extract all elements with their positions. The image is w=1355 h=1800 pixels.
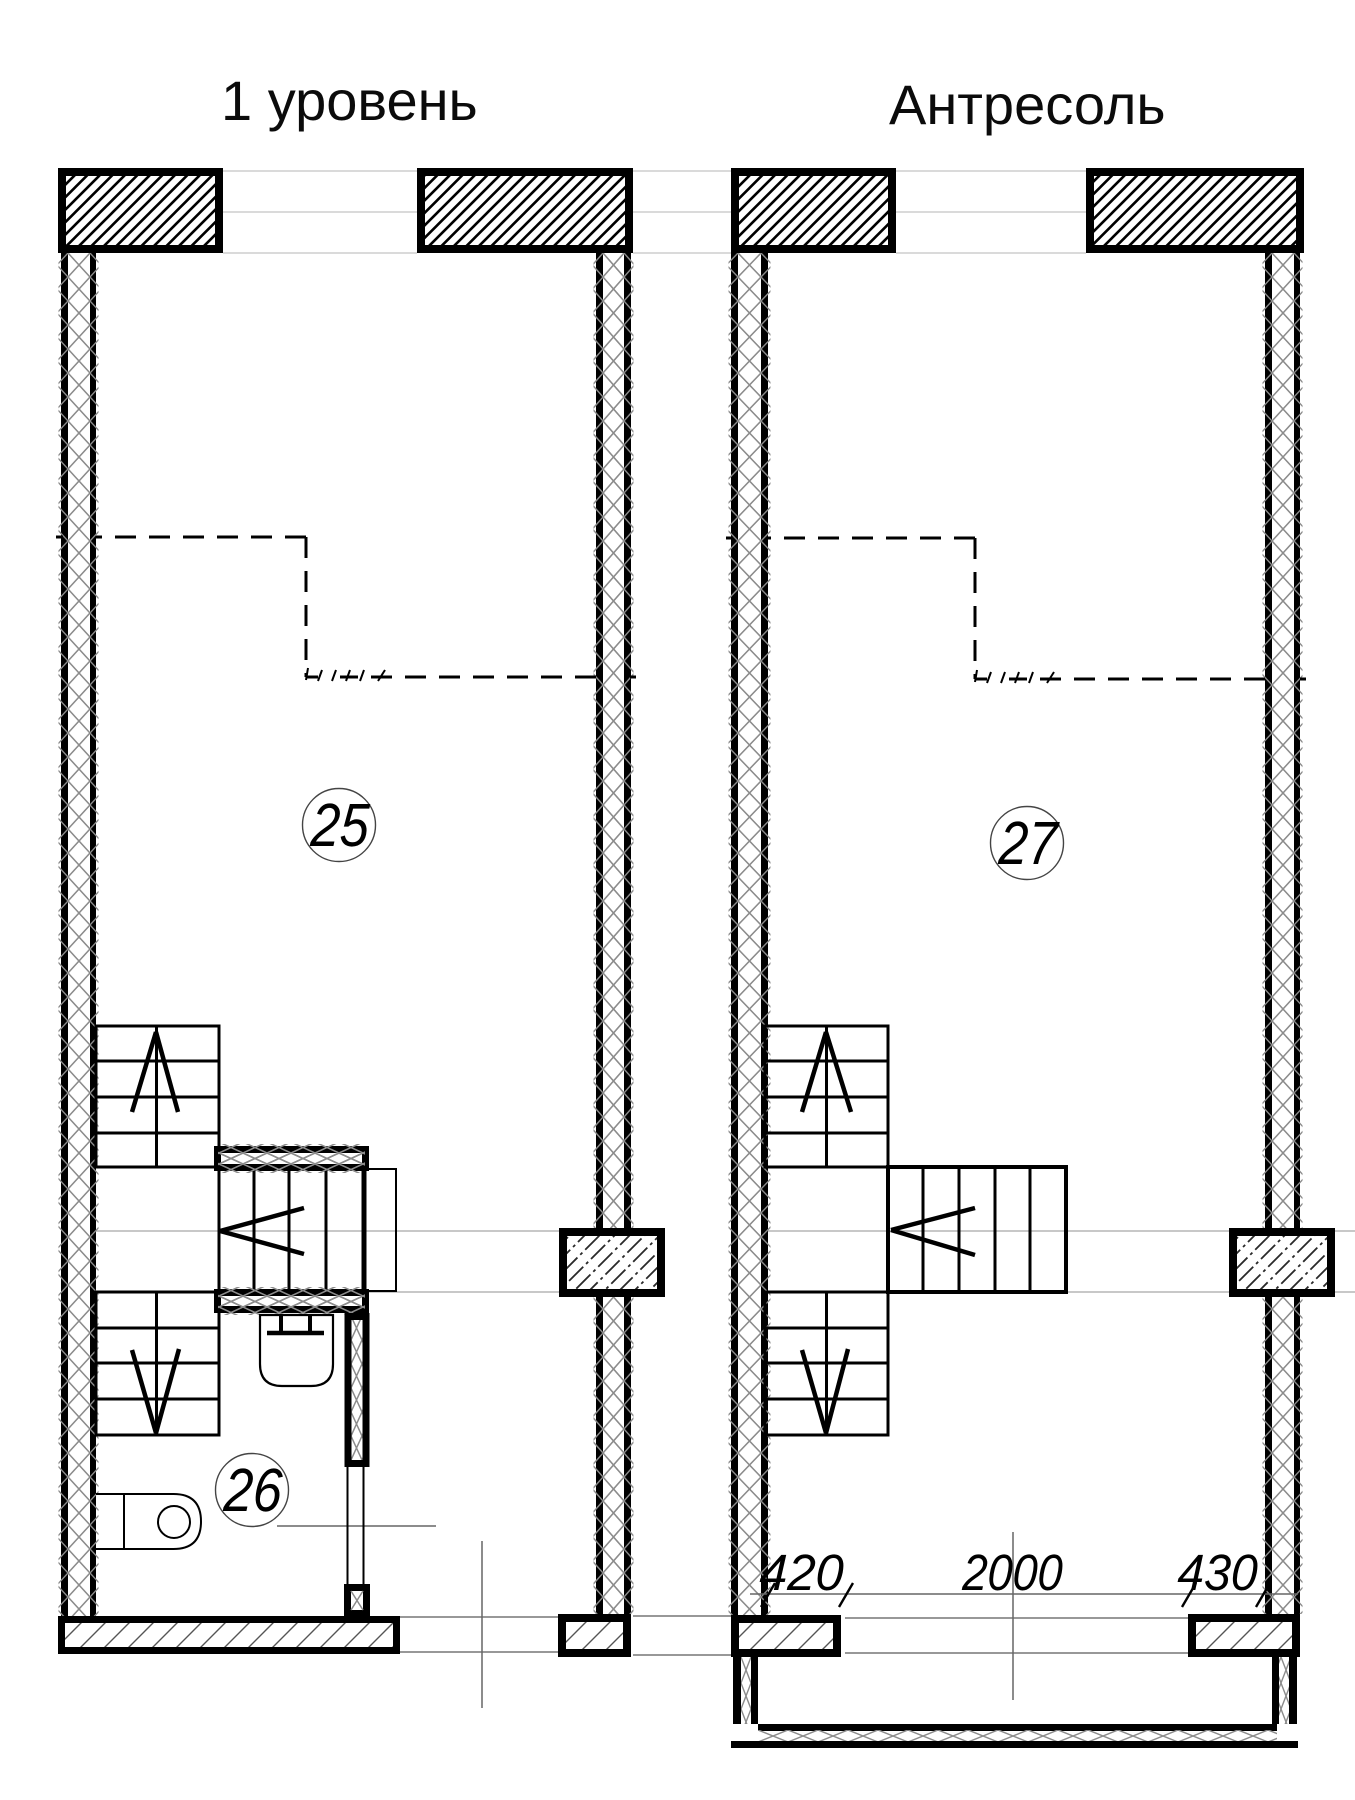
svg-text:27: 27 xyxy=(996,809,1060,877)
svg-text:420: 420 xyxy=(759,1544,845,1601)
svg-text:Антресоль: Антресоль xyxy=(889,73,1166,136)
svg-text:2000: 2000 xyxy=(961,1544,1064,1601)
svg-text:1 уровень: 1 уровень xyxy=(221,69,478,132)
svg-text:26: 26 xyxy=(221,1456,283,1524)
svg-text:25: 25 xyxy=(308,791,371,859)
svg-text:430: 430 xyxy=(1177,1544,1259,1601)
